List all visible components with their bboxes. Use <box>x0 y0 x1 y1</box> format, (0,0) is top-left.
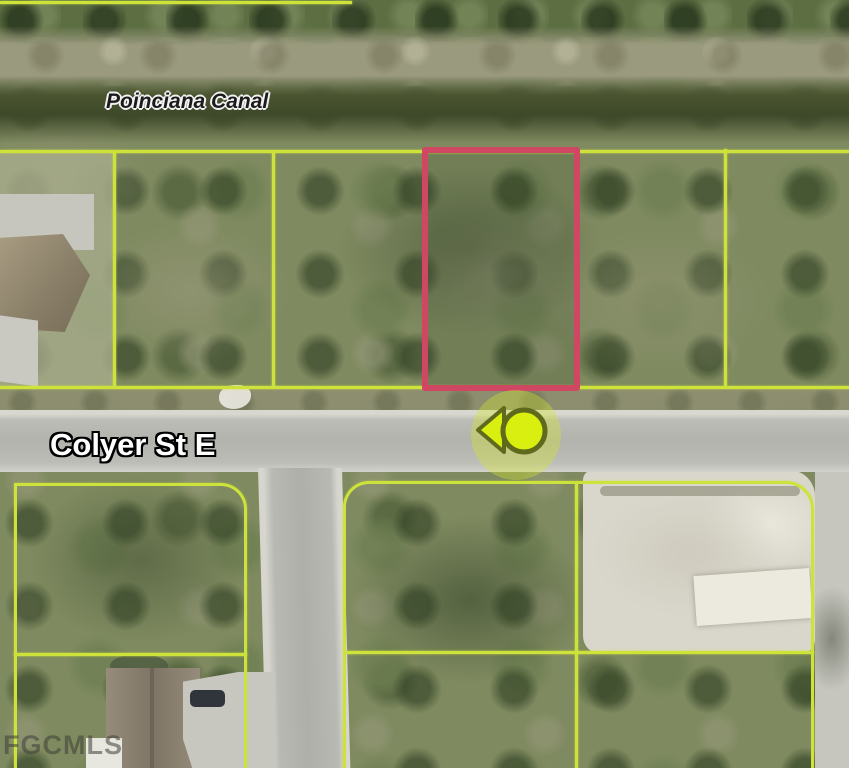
neighbor-driveway <box>0 315 38 386</box>
parcel-divider-southwest <box>14 653 247 656</box>
side-road-east <box>815 460 849 768</box>
parcel-outline-southwest <box>14 483 247 768</box>
parcel-line-vertical-1 <box>113 151 116 388</box>
street-label: Colyer St E <box>50 427 215 463</box>
location-marker-icon <box>455 372 585 497</box>
parcel-line-vertical-2 <box>272 151 275 388</box>
parcel-divider-southeast <box>346 651 814 654</box>
parcel-outline-southeast <box>343 481 814 768</box>
subject-parcel-outline <box>422 147 580 391</box>
mls-watermark: FGCMLS <box>3 730 123 761</box>
aerial-map-image: Poinciana Canal Colyer St E FGCMLS <box>0 0 849 768</box>
marker-dot <box>503 410 545 452</box>
parcel-line-vertical-3 <box>724 149 727 388</box>
parcel-divider-vertical-south <box>575 484 578 768</box>
canal-label: Poinciana Canal <box>106 90 268 114</box>
parcel-line-top-edge <box>0 1 352 4</box>
